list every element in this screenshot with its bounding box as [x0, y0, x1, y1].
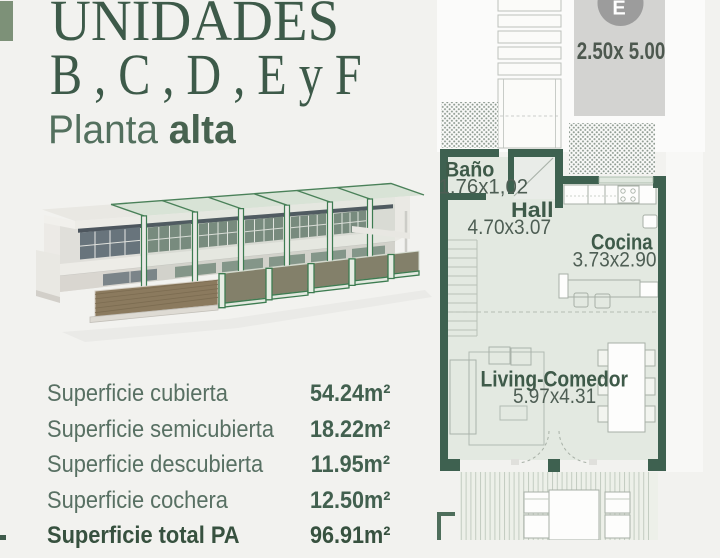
svg-text:2.50x 5.00: 2.50x 5.00: [577, 38, 665, 65]
svg-text:E: E: [612, 0, 625, 20]
svg-text:1.76x1,02: 1.76x1,02: [439, 175, 529, 199]
svg-text:4.70x3.07: 4.70x3.07: [468, 216, 552, 239]
svg-text:3.73x2.90: 3.73x2.90: [573, 249, 657, 272]
svg-text:5.97x4.31: 5.97x4.31: [513, 385, 596, 408]
